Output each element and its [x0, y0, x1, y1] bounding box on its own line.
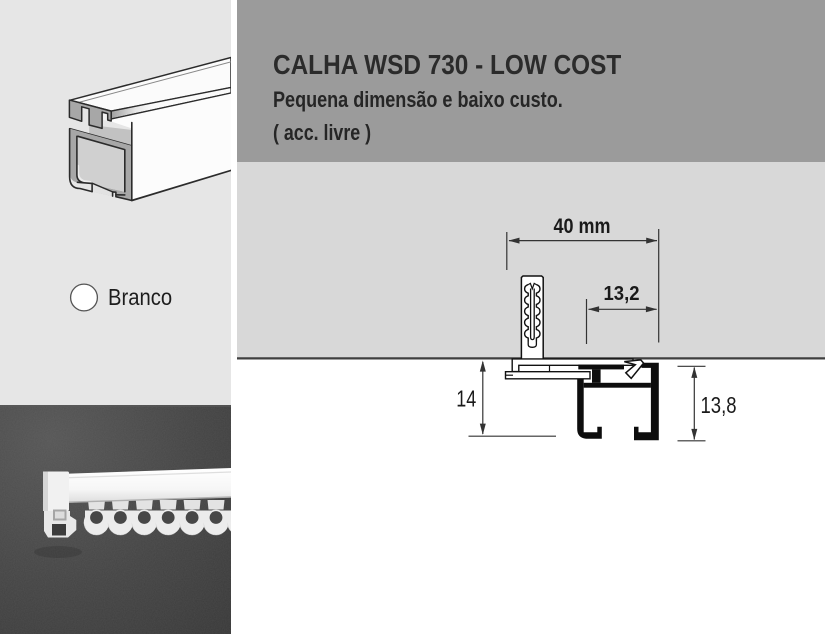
svg-text:13,2: 13,2: [604, 282, 640, 305]
svg-text:13,8: 13,8: [701, 392, 737, 418]
svg-text:14: 14: [456, 386, 476, 412]
svg-text:40 mm: 40 mm: [554, 214, 611, 238]
